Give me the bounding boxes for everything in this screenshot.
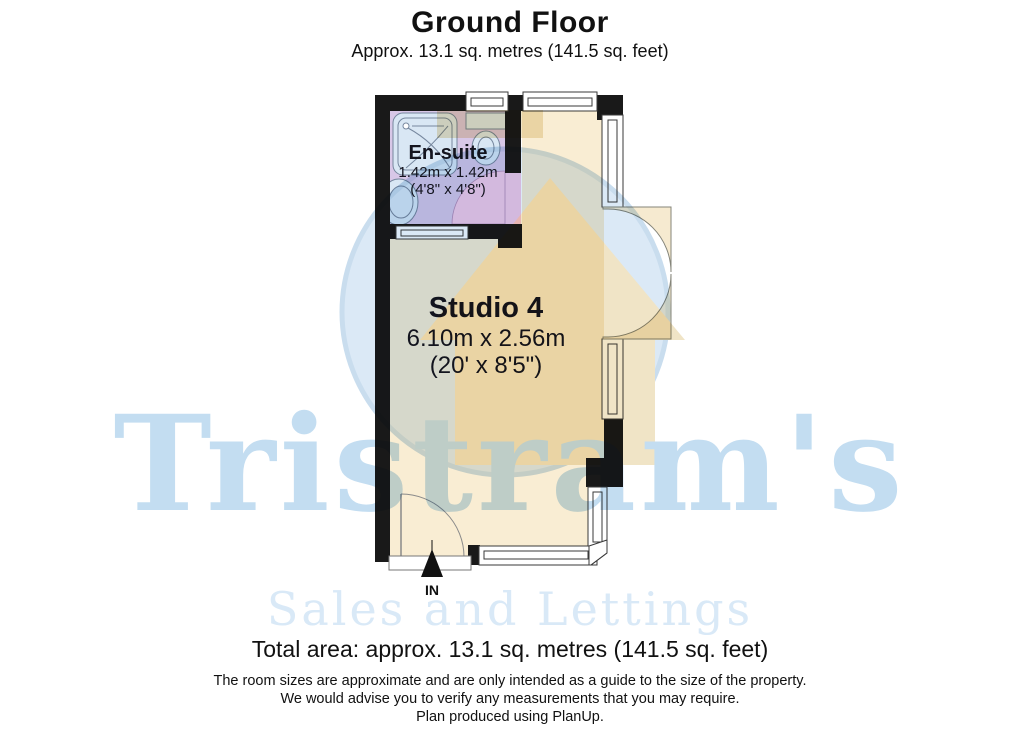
disclaimer-line-2: We would advise you to verify any measur… [0, 691, 1020, 707]
ensuite-dimensions-imperial: (4'8" x 4'8") [383, 181, 513, 198]
window-top-right [523, 92, 597, 111]
ensuite-dimensions-metric: 1.42m x 1.42m [383, 164, 513, 181]
floorplan-page: Ground Floor Approx. 13.1 sq. metres (14… [0, 0, 1020, 742]
room-label-ensuite: En-suite 1.42m x 1.42m (4'8" x 4'8") [383, 143, 513, 198]
studio-dimensions-metric: 6.10m x 2.56m [391, 325, 581, 352]
studio-name: Studio 4 [391, 292, 581, 325]
room-label-studio: Studio 4 6.10m x 2.56m (20' x 8'5") [391, 292, 581, 379]
ensuite-name: En-suite [383, 143, 513, 164]
window-right-middle [602, 339, 623, 419]
window-right-upper [602, 115, 623, 207]
french-door-bottom [603, 274, 671, 339]
studio-dimensions-imperial: (20' x 8'5") [391, 352, 581, 379]
window-right-lower [588, 487, 607, 549]
ensuite-internal-window [396, 226, 468, 239]
total-area-text: Total area: approx. 13.1 sq. metres (141… [0, 636, 1020, 663]
french-door-top [603, 207, 671, 272]
window-bottom [479, 546, 597, 565]
entrance-in-label: IN [412, 582, 452, 598]
french-doors [603, 207, 671, 339]
disclaimer-line-3: Plan produced using PlanUp. [0, 709, 1020, 725]
window-top-left [466, 92, 508, 111]
disclaimer-line-1: The room sizes are approximate and are o… [0, 673, 1020, 689]
